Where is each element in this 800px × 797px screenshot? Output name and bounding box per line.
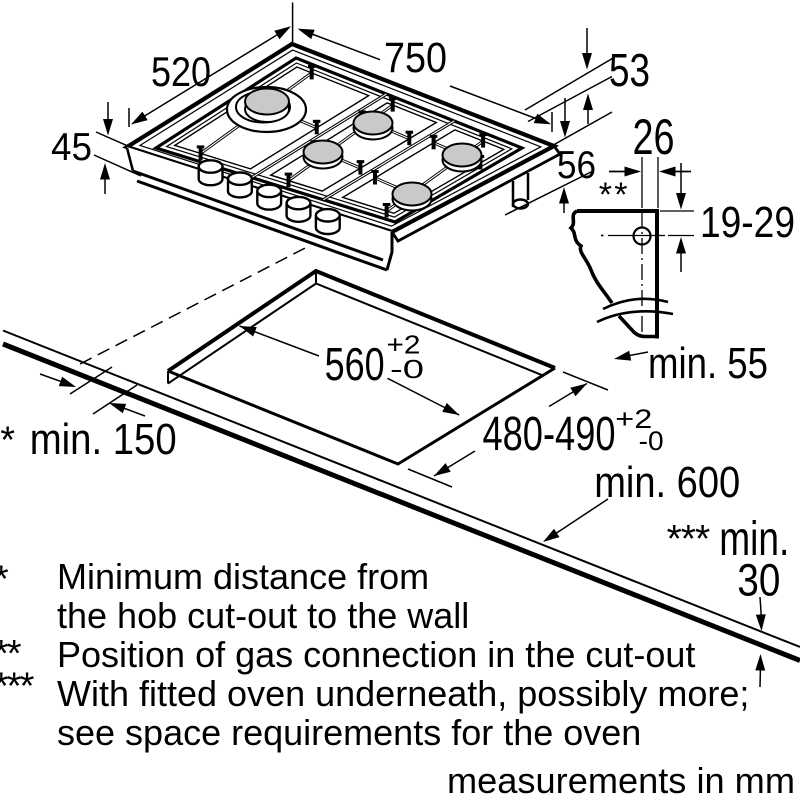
svg-text:*: * — [20, 666, 35, 708]
svg-text:520: 520 — [151, 48, 211, 95]
svg-text:min. 55: min. 55 — [648, 339, 768, 388]
svg-text:*: * — [0, 559, 9, 601]
svg-text:see space requirements for the: see space requirements for the oven — [57, 712, 641, 753]
svg-text:min. 600: min. 600 — [594, 458, 740, 507]
svg-text:53: 53 — [609, 44, 650, 96]
svg-text:45: 45 — [51, 126, 92, 169]
svg-text:Minimum distance from: Minimum distance from — [57, 556, 429, 597]
svg-text:*: * — [614, 176, 627, 214]
svg-text:*: * — [0, 420, 15, 462]
svg-text:26: 26 — [633, 109, 675, 165]
svg-text:*: * — [695, 518, 710, 561]
svg-text:480-490: 480-490 — [483, 408, 616, 461]
svg-text:*: * — [667, 518, 682, 561]
svg-text:min. 150: min. 150 — [30, 415, 177, 464]
svg-text:*: * — [681, 518, 696, 561]
svg-text:-0: -0 — [390, 354, 424, 384]
svg-text:With fitted oven underneath, p: With fitted oven underneath, possibly mo… — [57, 673, 749, 714]
svg-text:measurements in mm: measurements in mm — [447, 760, 795, 797]
svg-text:*: * — [599, 176, 612, 214]
svg-text:the hob cut-out to the wall: the hob cut-out to the wall — [57, 595, 469, 636]
svg-text:Position of gas connection in: Position of gas connection in the cut-ou… — [57, 634, 695, 675]
svg-text:30: 30 — [737, 555, 780, 606]
svg-text:56: 56 — [557, 144, 596, 187]
svg-text:-0: -0 — [639, 426, 664, 456]
svg-text:19-29: 19-29 — [700, 198, 795, 247]
svg-text:750: 750 — [384, 34, 447, 82]
svg-text:560: 560 — [325, 338, 385, 390]
